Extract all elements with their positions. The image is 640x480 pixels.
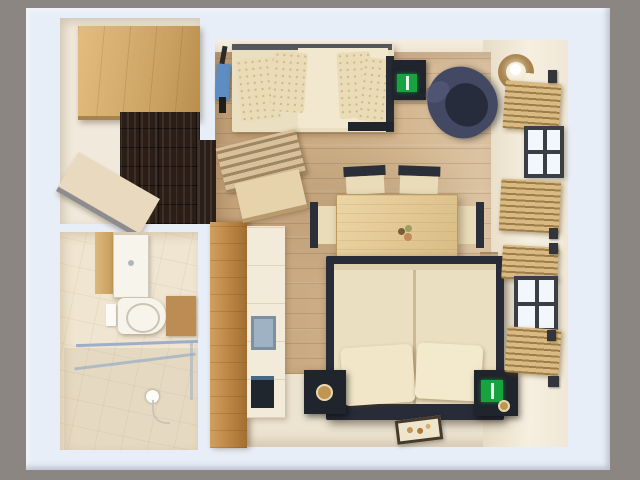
room-bathroom [60, 232, 198, 450]
window-mullion [543, 130, 547, 174]
bed-pillow [340, 344, 416, 407]
floorplan-stage [0, 0, 640, 480]
curtain-hook [548, 70, 557, 83]
nightstand-left [304, 370, 346, 414]
faucet [128, 260, 134, 266]
alarm-clock [316, 384, 333, 401]
dining-chair [343, 165, 387, 197]
toilet-paper-holder [106, 304, 116, 326]
toilet-seat [126, 303, 160, 333]
vanity-sink [113, 234, 149, 298]
bamboo-shade [499, 178, 562, 233]
window-mullion [535, 280, 539, 328]
sofa-frame [348, 122, 394, 131]
nightstand-right [474, 370, 518, 416]
flower [404, 233, 412, 241]
shower-glass-panel [76, 340, 198, 347]
lamp-light-strip [406, 76, 409, 90]
bamboo-shade [502, 80, 561, 132]
kitchen-sink [251, 316, 276, 350]
chair-back [310, 202, 318, 248]
tall-wood-door-panel [210, 222, 247, 448]
toilet [118, 298, 166, 334]
curtain-hook [549, 228, 558, 239]
green-console-lamp [397, 74, 417, 92]
curtain-hook [548, 376, 559, 387]
room-entry-hall [60, 18, 200, 224]
chair-seat [346, 175, 385, 195]
shower-glass-panel [190, 342, 193, 400]
doorway-dark-parquet [198, 140, 216, 224]
chair-back [476, 202, 484, 248]
art-detail [407, 427, 414, 434]
dining-chair [397, 165, 440, 196]
lamp-light-strip [491, 383, 494, 400]
sofa-bed [232, 44, 394, 132]
lamp-bulb [510, 64, 521, 75]
window-lower [514, 276, 558, 332]
vanity-wood-panel [95, 232, 113, 294]
flower-centerpiece [396, 224, 416, 242]
lamp-pole [219, 97, 226, 113]
chair-seat [400, 175, 439, 194]
oven [251, 376, 274, 408]
art-detail [425, 424, 431, 430]
art-detail [417, 428, 424, 435]
sofa-pillow [270, 51, 308, 113]
alarm-clock [498, 400, 510, 412]
curtain-hook [549, 243, 558, 254]
flower [405, 225, 412, 232]
wardrobe [78, 26, 200, 120]
bath-mat [166, 296, 196, 336]
ironing-board-blue [215, 64, 231, 101]
kitchenette-counter [247, 226, 285, 418]
green-bedside-lamp [481, 380, 503, 402]
curtain-hook [547, 330, 556, 341]
window-upper [524, 126, 564, 178]
